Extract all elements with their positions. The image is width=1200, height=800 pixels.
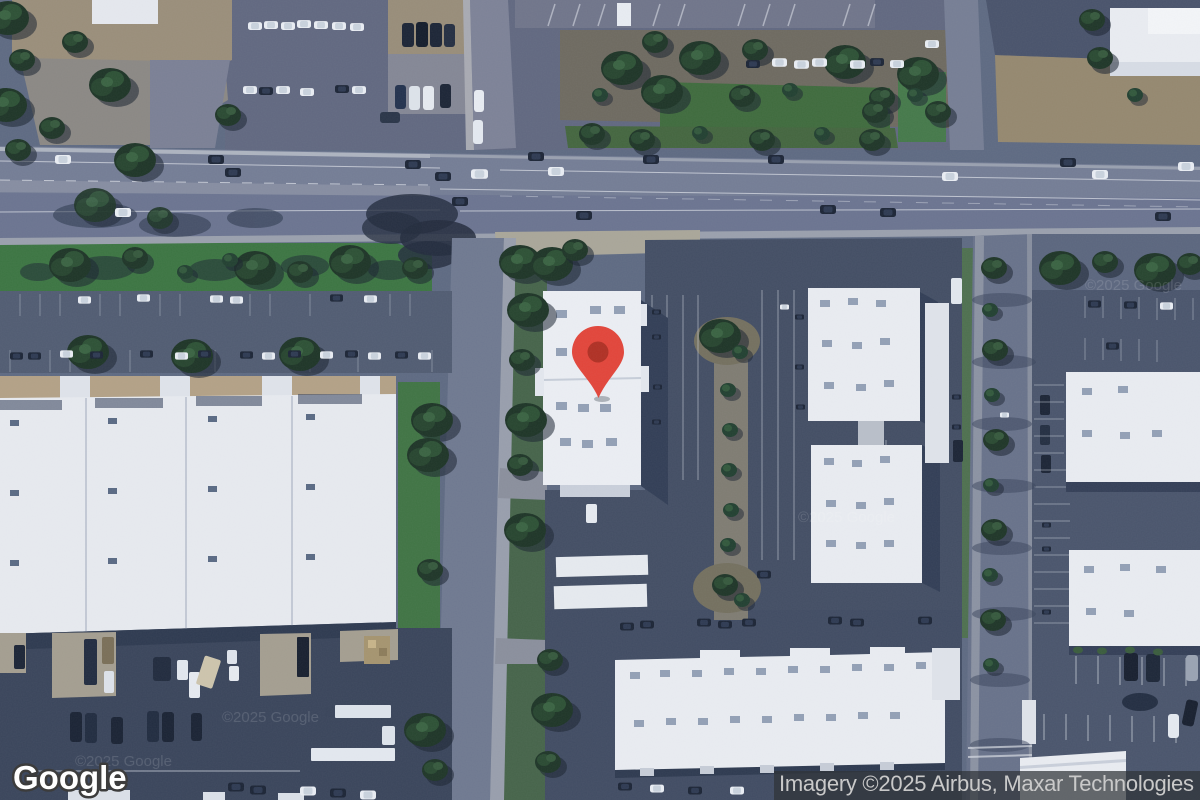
svg-text:©2025 Google: ©2025 Google [222,709,319,726]
svg-text:©2025 Google: ©2025 Google [798,509,895,526]
svg-text:Imagery ©2025 Airbus, Maxar Te: Imagery ©2025 Airbus, Maxar Technologies [779,771,1194,796]
svg-text:Google: Google [13,759,127,796]
svg-text:©2025 Google: ©2025 Google [1085,277,1182,294]
